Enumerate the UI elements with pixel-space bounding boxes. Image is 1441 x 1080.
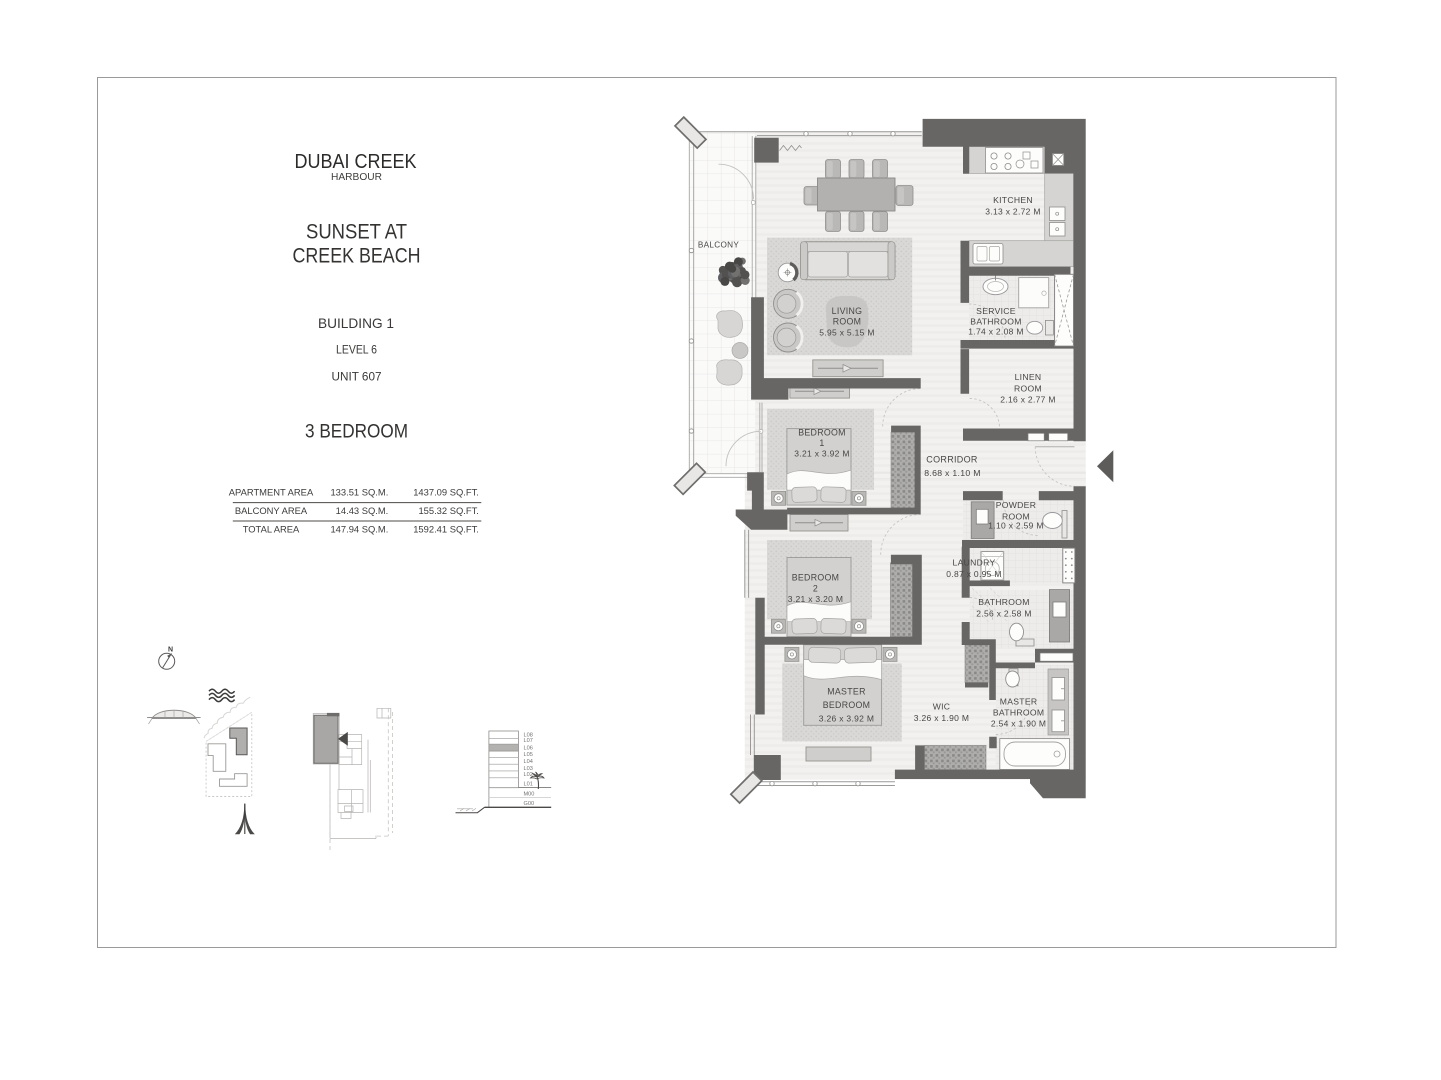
svg-text:BATHROOM: BATHROOM [970,317,1021,327]
svg-text:SERVICE: SERVICE [976,306,1016,316]
svg-text:1437.09 SQ.FT.: 1437.09 SQ.FT. [413,487,479,498]
svg-text:L06: L06 [524,746,533,752]
svg-text:BALCONY AREA: BALCONY AREA [235,505,308,516]
svg-text:POWDER: POWDER [996,500,1036,510]
svg-text:MASTER: MASTER [827,687,865,697]
svg-text:BUILDING 1: BUILDING 1 [318,315,394,331]
svg-text:3.21 x 3.20 M: 3.21 x 3.20 M [788,594,843,604]
svg-text:2.16 x 2.77 M: 2.16 x 2.77 M [1000,395,1055,405]
svg-text:BEDROOM: BEDROOM [823,700,871,710]
svg-text:CORRIDOR: CORRIDOR [926,455,978,465]
svg-text:8.68 x 1.10 M: 8.68 x 1.10 M [924,468,981,478]
svg-text:BATHROOM: BATHROOM [993,708,1044,718]
svg-text:3.21 x 3.92 M: 3.21 x 3.92 M [794,449,849,459]
svg-text:1592.41 SQ.FT.: 1592.41 SQ.FT. [413,524,479,535]
svg-text:1.10 x 2.59 M: 1.10 x 2.59 M [988,521,1043,531]
svg-text:BATHROOM: BATHROOM [978,597,1029,607]
svg-text:L01: L01 [524,782,533,788]
svg-text:L07: L07 [524,738,533,744]
svg-text:MASTER: MASTER [1000,697,1038,707]
svg-text:2: 2 [813,583,818,593]
svg-text:1: 1 [819,438,824,448]
svg-text:APARTMENT AREA: APARTMENT AREA [229,487,314,498]
svg-text:HARBOUR: HARBOUR [331,172,382,183]
svg-text:G00: G00 [524,801,535,807]
svg-text:KITCHEN: KITCHEN [993,195,1033,205]
svg-text:CREEK BEACH: CREEK BEACH [293,245,421,268]
svg-text:UNIT 607: UNIT 607 [332,371,382,384]
svg-text:N: N [168,647,173,654]
svg-text:3.26 x 1.90 M: 3.26 x 1.90 M [914,713,969,723]
svg-text:DUBAI CREEK: DUBAI CREEK [295,150,417,173]
svg-text:3.26 x 3.92 M: 3.26 x 3.92 M [819,714,874,724]
svg-text:LEVEL 6: LEVEL 6 [336,344,377,357]
svg-text:LAUNDRY: LAUNDRY [952,558,995,568]
svg-text:14.43 SQ.M.: 14.43 SQ.M. [336,505,389,516]
svg-text:0.87 x 0.95 M: 0.87 x 0.95 M [946,569,1001,579]
svg-text:M00: M00 [524,792,535,798]
svg-text:TOTAL AREA: TOTAL AREA [243,524,300,535]
svg-text:ROOM: ROOM [833,317,862,327]
svg-text:SUNSET AT: SUNSET AT [306,221,407,244]
svg-text:2.54 x 1.90 M: 2.54 x 1.90 M [991,719,1046,729]
svg-text:3.13 x 2.72 M: 3.13 x 2.72 M [985,207,1040,217]
svg-text:LIVING: LIVING [832,306,863,316]
svg-text:L04: L04 [524,759,533,765]
svg-text:3 BEDROOM: 3 BEDROOM [305,422,408,443]
svg-text:WIC: WIC [933,702,951,712]
svg-text:155.32 SQ.FT.: 155.32 SQ.FT. [418,505,478,516]
svg-text:2.56 x 2.58 M: 2.56 x 2.58 M [976,609,1031,619]
svg-text:L03: L03 [524,766,533,772]
svg-text:L05: L05 [524,752,533,758]
svg-text:1.74 x 2.08 M: 1.74 x 2.08 M [968,327,1023,337]
svg-text:BEDROOM: BEDROOM [792,573,840,583]
svg-text:LINEN: LINEN [1015,372,1042,382]
svg-text:BEDROOM: BEDROOM [798,428,846,438]
svg-text:ROOM: ROOM [1014,384,1042,394]
svg-text:BALCONY: BALCONY [698,241,739,250]
svg-text:147.94 SQ.M.: 147.94 SQ.M. [330,524,388,535]
svg-text:5.95 x 5.15 M: 5.95 x 5.15 M [819,328,874,338]
svg-text:133.51 SQ.M.: 133.51 SQ.M. [330,487,388,498]
